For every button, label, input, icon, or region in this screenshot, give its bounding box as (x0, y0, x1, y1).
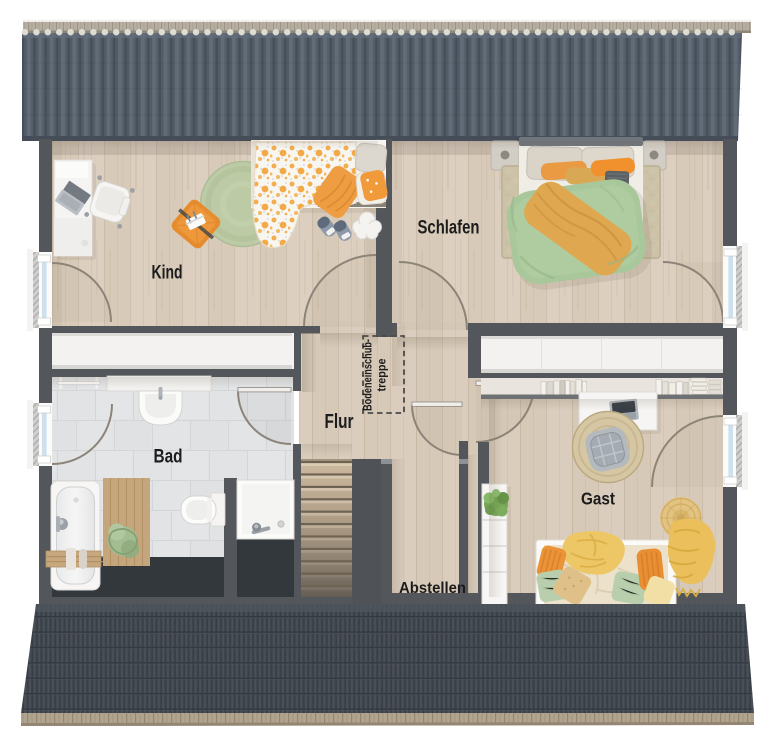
svg-text:Schlafen: Schlafen (418, 218, 480, 239)
svg-text:Abstellen: Abstellen (399, 580, 466, 597)
svg-text:Bodeneinschub-: Bodeneinschub- (361, 339, 375, 411)
svg-text:Gast: Gast (581, 489, 615, 509)
svg-text:Kind: Kind (152, 263, 183, 284)
svg-text:Bad: Bad (154, 447, 183, 468)
svg-text:treppe: treppe (375, 358, 389, 391)
svg-text:Flur: Flur (325, 411, 354, 433)
